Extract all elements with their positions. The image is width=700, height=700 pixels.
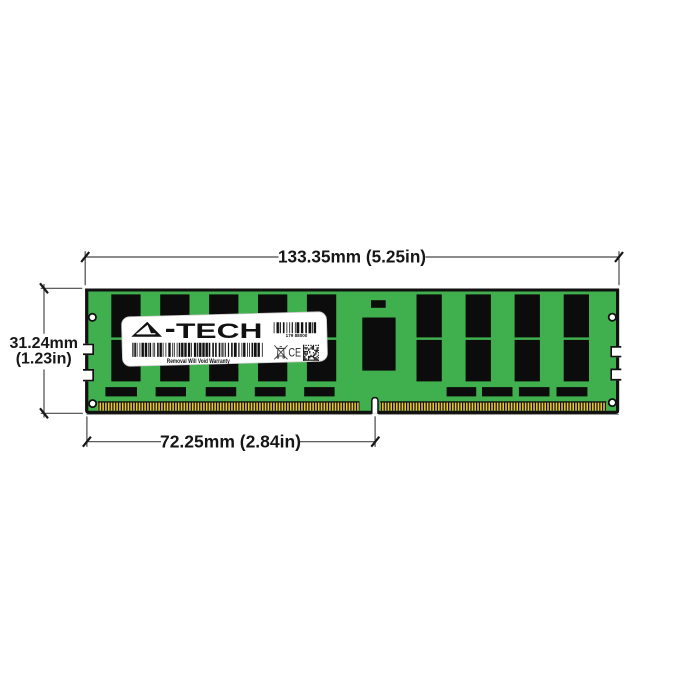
- svg-text:CE: CE: [288, 345, 301, 359]
- svg-text:(1.23in): (1.23in): [16, 351, 72, 368]
- svg-text:72.25mm (2.84in): 72.25mm (2.84in): [160, 431, 301, 451]
- svg-text:133.35mm (5.25in): 133.35mm (5.25in): [278, 247, 426, 267]
- svg-text:179 88000: 179 88000: [286, 333, 308, 338]
- svg-text:TECH: TECH: [176, 320, 263, 343]
- svg-text:Removal Will Void Warranty: Removal Will Void Warranty: [167, 358, 230, 365]
